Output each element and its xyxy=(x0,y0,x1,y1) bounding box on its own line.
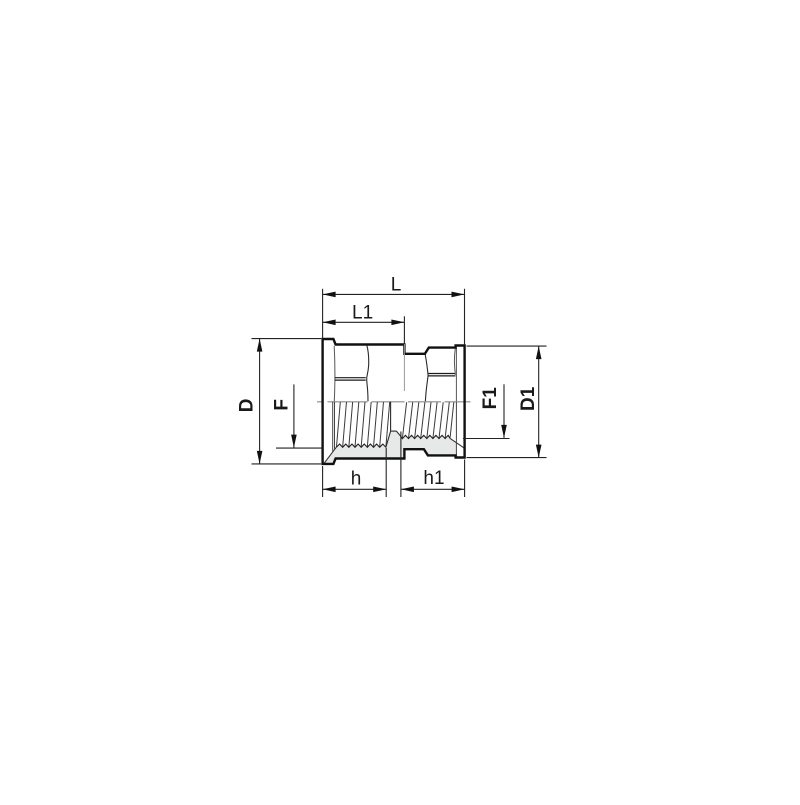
svg-text:D1: D1 xyxy=(518,386,539,411)
svg-text:L: L xyxy=(391,275,402,296)
svg-text:F1: F1 xyxy=(480,387,501,410)
svg-text:h1: h1 xyxy=(423,468,444,489)
svg-text:D: D xyxy=(237,398,258,412)
svg-text:F: F xyxy=(272,399,293,411)
svg-text:L1: L1 xyxy=(352,303,373,324)
svg-text:h: h xyxy=(351,468,362,489)
